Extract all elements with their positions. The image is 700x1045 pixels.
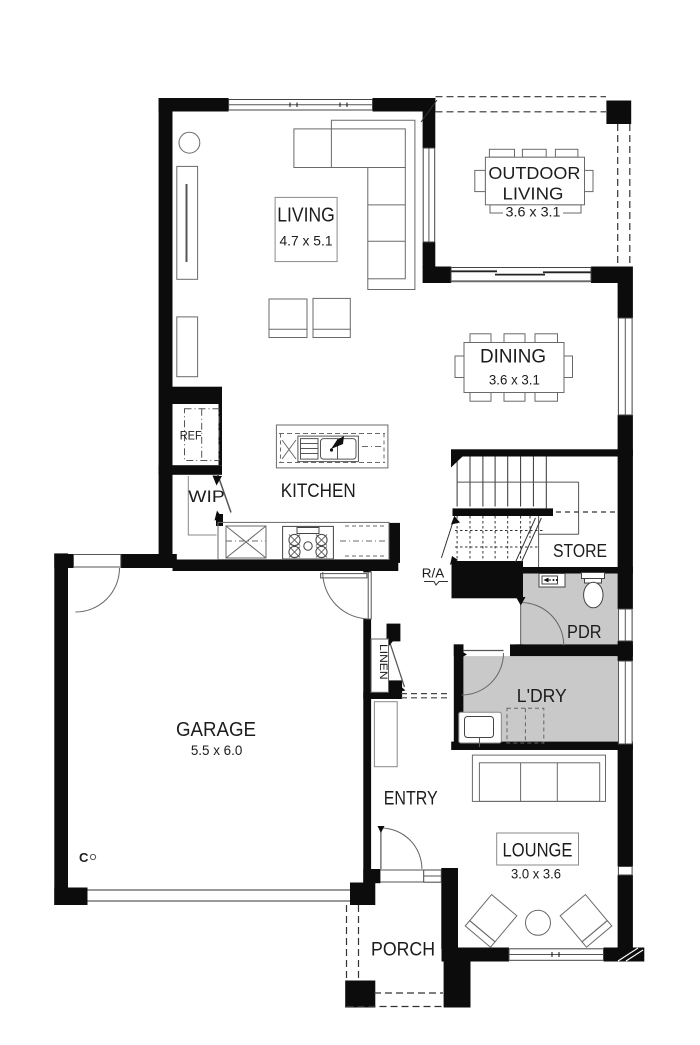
svg-text:PDR: PDR: [567, 622, 602, 642]
svg-text:3.6 x 3.1: 3.6 x 3.1: [489, 372, 540, 388]
svg-text:GARAGE: GARAGE: [176, 719, 256, 741]
svg-text:5.5 x 6.0: 5.5 x 6.0: [191, 742, 243, 758]
svg-text:DINING: DINING: [480, 347, 546, 368]
svg-text:LOUNGE: LOUNGE: [503, 841, 573, 862]
svg-text:OUTDOOR: OUTDOOR: [488, 163, 580, 183]
svg-text:L'DRY: L'DRY: [517, 686, 567, 706]
svg-text:LINEN: LINEN: [377, 644, 389, 680]
svg-text:LIVING: LIVING: [277, 205, 335, 227]
svg-text:3.0 x 3.6: 3.0 x 3.6: [511, 865, 561, 881]
svg-text:ENTRY: ENTRY: [384, 788, 438, 809]
svg-text:C: C: [79, 850, 89, 865]
svg-text:PORCH: PORCH: [371, 940, 435, 961]
svg-text:4.7 x 5.1: 4.7 x 5.1: [280, 233, 333, 249]
svg-text:STORE: STORE: [553, 541, 607, 561]
svg-text:WIP: WIP: [188, 487, 224, 506]
svg-text:LIVING: LIVING: [503, 184, 564, 204]
svg-text:R/A: R/A: [422, 566, 445, 581]
svg-text:3.6 x 3.1: 3.6 x 3.1: [506, 204, 561, 220]
svg-text:KITCHEN: KITCHEN: [281, 481, 356, 502]
svg-text:REF: REF: [180, 430, 202, 442]
